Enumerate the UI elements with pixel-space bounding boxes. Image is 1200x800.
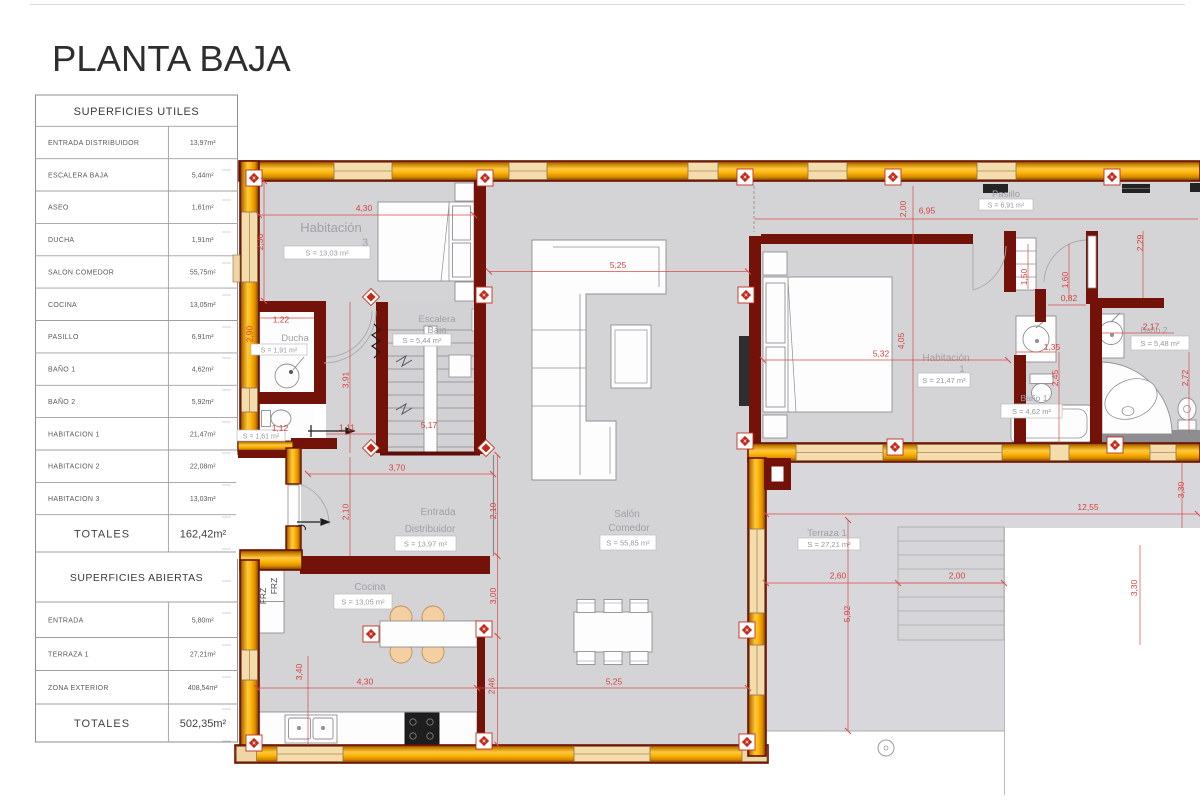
svg-text:1,35: 1,35 — [1044, 342, 1061, 352]
svg-text:55,75m²: 55,75m² — [190, 270, 216, 277]
svg-text:Escalera: Escalera — [419, 314, 457, 325]
svg-text:Cocina: Cocina — [354, 582, 386, 593]
svg-text:1,91m²: 1,91m² — [192, 237, 214, 244]
svg-text:Distribuidor: Distribuidor — [405, 524, 456, 535]
svg-text:0,82: 0,82 — [1061, 293, 1078, 303]
svg-text:ASEO: ASEO — [48, 205, 69, 212]
svg-text:21,47m²: 21,47m² — [190, 431, 216, 438]
svg-text:ESCALERA BAJA: ESCALERA BAJA — [48, 172, 108, 179]
svg-text:408,54m²: 408,54m² — [188, 685, 218, 692]
svg-text:S = 55,85 m²: S = 55,85 m² — [606, 539, 650, 548]
svg-text:HABITACION 1: HABITACION 1 — [48, 431, 100, 438]
svg-text:2,00: 2,00 — [949, 571, 966, 581]
svg-text:Comedor: Comedor — [608, 523, 650, 534]
svg-text:FRZ: FRZ — [269, 578, 279, 595]
svg-text:Baño 1: Baño 1 — [1021, 393, 1048, 403]
svg-text:22,08m²: 22,08m² — [190, 464, 216, 471]
svg-text:SALON COMEDOR: SALON COMEDOR — [48, 270, 114, 277]
svg-text:1,12: 1,12 — [272, 423, 289, 433]
svg-text:6,91m²: 6,91m² — [192, 334, 214, 341]
svg-text:5,17: 5,17 — [421, 420, 438, 430]
svg-text:5,44m²: 5,44m² — [192, 172, 214, 179]
svg-text:162,42m²: 162,42m² — [180, 529, 227, 541]
svg-text:1,22: 1,22 — [273, 315, 290, 325]
svg-text:5,92: 5,92 — [842, 605, 852, 622]
svg-text:ENTRADA DISTRIBUIDOR: ENTRADA DISTRIBUIDOR — [48, 140, 139, 147]
svg-text:1,61m²: 1,61m² — [192, 205, 214, 212]
svg-text:1,60: 1,60 — [1060, 271, 1070, 288]
svg-text:5,25: 5,25 — [606, 677, 623, 687]
svg-text:13,03m²: 13,03m² — [190, 496, 216, 503]
svg-text:2,29: 2,29 — [1135, 234, 1145, 251]
svg-text:Salón: Salón — [614, 509, 640, 520]
svg-text:HABITACION 3: HABITACION 3 — [48, 496, 100, 503]
svg-text:2,10: 2,10 — [488, 502, 498, 519]
svg-text:S = 5,44 m²: S = 5,44 m² — [403, 336, 442, 345]
svg-text:3,70: 3,70 — [389, 463, 406, 473]
svg-text:13,05m²: 13,05m² — [190, 302, 216, 309]
svg-text:1,50: 1,50 — [1019, 268, 1029, 285]
svg-text:S = 6,91 m²: S = 6,91 m² — [988, 203, 1025, 210]
svg-text:1: 1 — [959, 364, 964, 374]
svg-text:2,72: 2,72 — [1180, 369, 1190, 386]
svg-text:S = 4,62 m²: S = 4,62 m² — [1012, 407, 1051, 416]
svg-text:S = 13,97 m²: S = 13,97 m² — [404, 540, 448, 549]
svg-text:S = 5,48 m²: S = 5,48 m² — [1141, 339, 1180, 348]
svg-text:ENTRADA: ENTRADA — [48, 617, 84, 624]
svg-text:PASILLO: PASILLO — [48, 334, 79, 341]
svg-text:3,40: 3,40 — [294, 663, 304, 680]
svg-text:4,30: 4,30 — [356, 203, 373, 213]
svg-text:ZONA EXTERIOR: ZONA EXTERIOR — [48, 685, 109, 692]
svg-text:3,00: 3,00 — [488, 587, 498, 604]
svg-text:2,60: 2,60 — [830, 571, 847, 581]
svg-text:SUPERFICIES ABIERTAS: SUPERFICIES ABIERTAS — [70, 572, 203, 584]
svg-text:S = 1,61 m²: S = 1,61 m² — [243, 434, 280, 441]
svg-text:4,62m²: 4,62m² — [192, 367, 214, 374]
svg-text:2,45: 2,45 — [1050, 369, 1060, 386]
svg-text:TOTALES: TOTALES — [74, 718, 130, 730]
svg-text:Terraza 1: Terraza 1 — [807, 528, 847, 539]
svg-text:4,05: 4,05 — [896, 332, 906, 349]
svg-text:27,21m²: 27,21m² — [190, 652, 216, 659]
svg-text:Habitación: Habitación — [300, 220, 361, 235]
svg-text:2,10: 2,10 — [341, 503, 351, 520]
svg-text:Pasillo: Pasillo — [992, 189, 1020, 200]
svg-text:TERRAZA 1: TERRAZA 1 — [48, 652, 89, 659]
svg-text:S = 13,03 m²: S = 13,03 m² — [305, 249, 349, 258]
svg-text:6,95: 6,95 — [919, 206, 936, 216]
svg-text:4,30: 4,30 — [357, 677, 374, 687]
svg-text:2,46: 2,46 — [487, 677, 497, 694]
svg-text:PLANTA BAJA: PLANTA BAJA — [52, 38, 291, 79]
svg-text:S = 21,47 m²: S = 21,47 m² — [922, 376, 966, 385]
svg-text:13,97m²: 13,97m² — [190, 140, 216, 147]
svg-text:S = 13,05 m²: S = 13,05 m² — [341, 598, 385, 607]
svg-text:S = 1,91 m²: S = 1,91 m² — [261, 348, 298, 355]
svg-text:2,36: 2,36 — [255, 233, 265, 250]
svg-text:Habitación: Habitación — [922, 353, 969, 364]
svg-text:SUPERFICIES UTILES: SUPERFICIES UTILES — [74, 106, 200, 118]
svg-text:HABITACION 2: HABITACION 2 — [48, 464, 100, 471]
svg-text:S = 27,21 m²: S = 27,21 m² — [807, 540, 851, 549]
svg-text:COCINA: COCINA — [48, 302, 77, 309]
svg-text:5,32: 5,32 — [873, 349, 890, 359]
svg-text:BAÑO 2: BAÑO 2 — [48, 397, 75, 406]
svg-text:2,17: 2,17 — [1143, 322, 1160, 332]
svg-text:5,25: 5,25 — [610, 260, 627, 270]
svg-text:5,80m²: 5,80m² — [192, 617, 214, 624]
svg-text:5,92m²: 5,92m² — [192, 399, 214, 406]
svg-text:3,30: 3,30 — [1129, 579, 1139, 596]
svg-text:502,35m²: 502,35m² — [180, 718, 227, 730]
svg-text:12,55: 12,55 — [1077, 502, 1099, 512]
svg-text:Ducha: Ducha — [281, 333, 309, 344]
svg-text:DUCHA: DUCHA — [48, 237, 74, 244]
svg-text:3,91: 3,91 — [341, 371, 351, 388]
svg-text:BAÑO 1: BAÑO 1 — [48, 365, 75, 374]
svg-text:Entrada: Entrada — [420, 507, 455, 518]
svg-text:2,90: 2,90 — [245, 325, 255, 342]
svg-text:1,11: 1,11 — [339, 423, 355, 433]
svg-text:2,00: 2,00 — [898, 200, 908, 217]
svg-text:TOTALES: TOTALES — [74, 529, 130, 541]
svg-text:3,30: 3,30 — [1176, 481, 1186, 498]
